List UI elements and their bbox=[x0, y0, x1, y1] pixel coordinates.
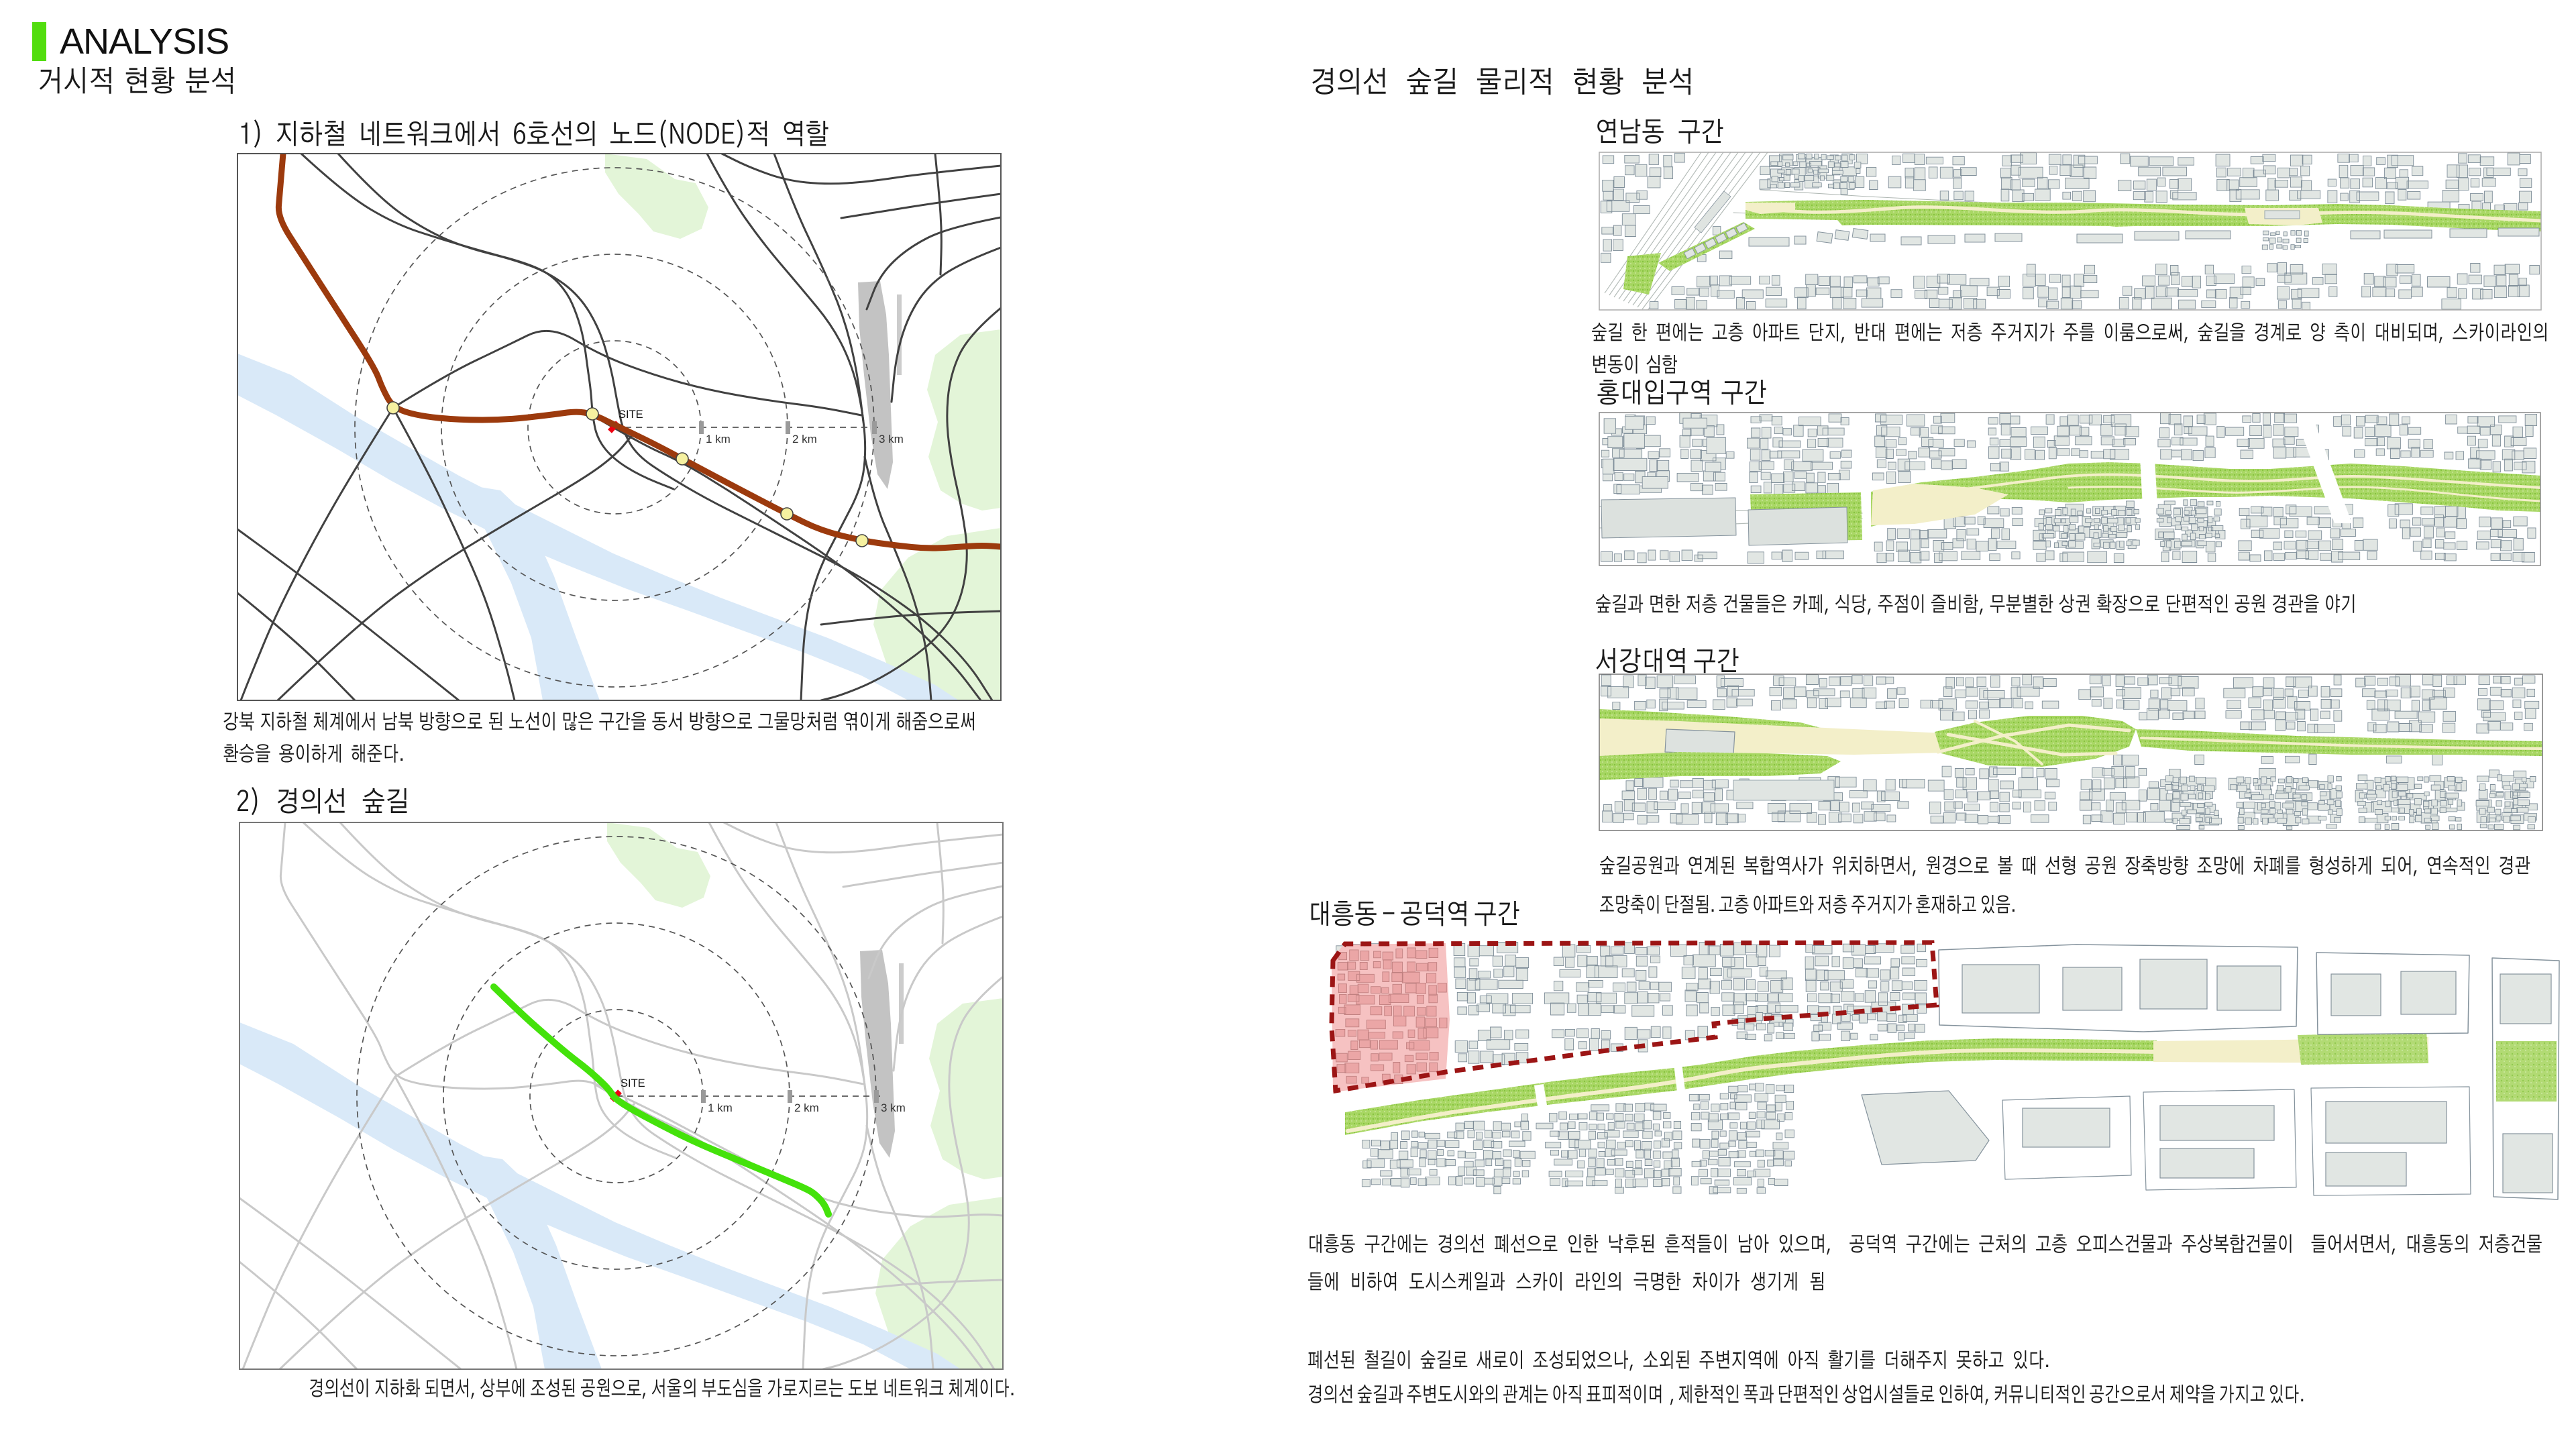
svg-text:1 km: 1 km bbox=[708, 1102, 733, 1114]
svg-text:1 km: 1 km bbox=[706, 433, 731, 445]
svg-text:3 km: 3 km bbox=[879, 433, 904, 445]
svg-text:SITE: SITE bbox=[621, 1077, 645, 1089]
svg-text:2 km: 2 km bbox=[794, 1102, 819, 1114]
svg-text:ANALYSIS: ANALYSIS bbox=[60, 21, 229, 62]
svg-text:3 km: 3 km bbox=[881, 1102, 906, 1114]
svg-text:SITE: SITE bbox=[619, 409, 643, 421]
svg-text:2 km: 2 km bbox=[792, 433, 817, 445]
